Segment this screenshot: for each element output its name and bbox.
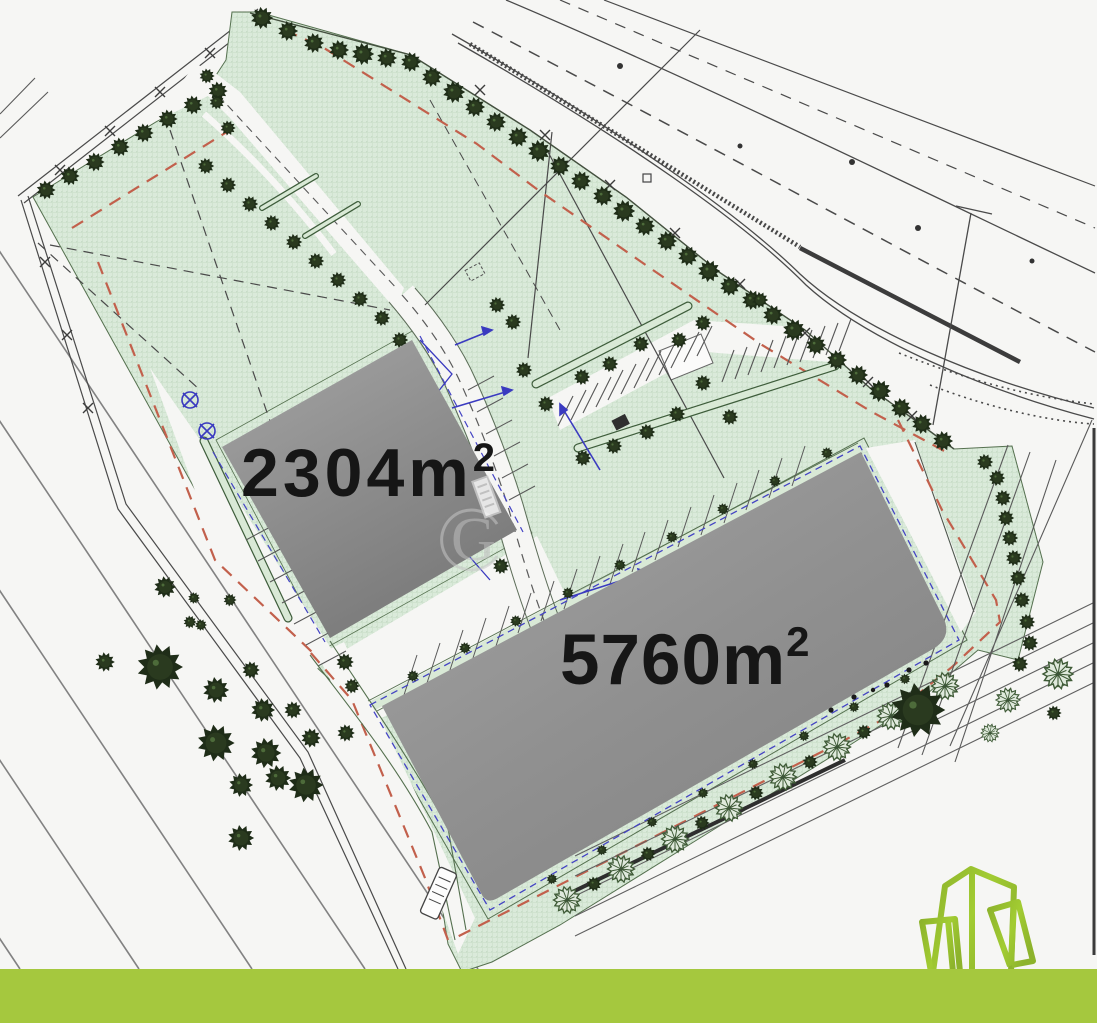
svg-text:5760m2: 5760m2 xyxy=(560,618,809,700)
svg-text:2304m2: 2304m2 xyxy=(241,435,495,511)
